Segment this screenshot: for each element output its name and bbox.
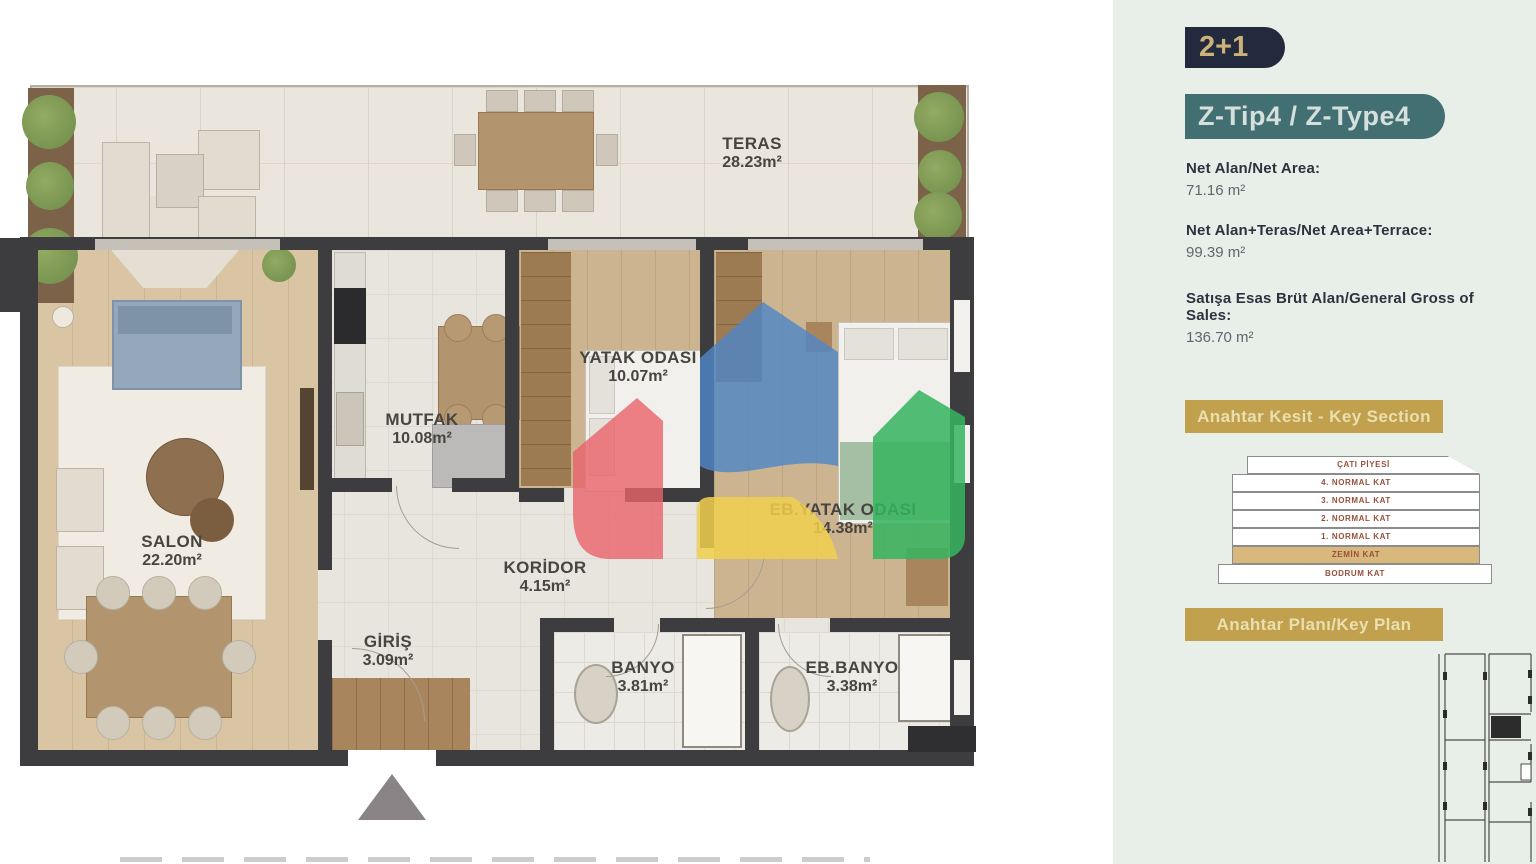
- cooktop: [334, 288, 366, 344]
- dining-chair: [96, 576, 130, 610]
- wall: [660, 618, 775, 632]
- plant-icon: [22, 95, 76, 149]
- wall: [745, 632, 759, 750]
- key-plan-banner: Anahtar Planı/Key Plan: [1185, 608, 1443, 641]
- floor-row: 2. NORMAL KAT: [1232, 510, 1480, 528]
- pillow: [589, 418, 615, 476]
- room-label-yatak-odasi: YATAK ODASI 10.07m²: [579, 348, 696, 386]
- floor-row: ÇATI PİYESİ: [1247, 456, 1480, 474]
- sofa-cushions: [118, 306, 232, 334]
- floor-row: BODRUM KAT: [1218, 564, 1492, 584]
- dining-chair: [188, 576, 222, 610]
- room-label-giris: GİRİŞ 3.09m²: [363, 632, 414, 670]
- kitchen-sink: [336, 392, 364, 446]
- dining-chair: [188, 706, 222, 740]
- dining-chair: [96, 706, 130, 740]
- wall: [318, 250, 332, 570]
- terrace-chair: [486, 190, 518, 212]
- sliding-door: [748, 239, 923, 250]
- terrace-chair: [562, 190, 594, 212]
- dining-table: [86, 596, 232, 718]
- unit-code-badge: Z-Tip4 / Z-Type4: [1185, 94, 1445, 139]
- terrace-table: [156, 154, 204, 208]
- wall: [625, 488, 714, 502]
- plant-icon: [914, 192, 962, 240]
- shaft-block: [908, 726, 976, 752]
- room-label-mutfak: MUTFAK 10.08m²: [385, 410, 458, 448]
- floor-lamp-icon: [52, 306, 74, 328]
- wall: [554, 618, 614, 632]
- shower: [898, 634, 956, 722]
- floor-row: 1. NORMAL KAT: [1232, 528, 1480, 546]
- floor-row-highlighted: ZEMİN KAT: [1232, 546, 1480, 564]
- plant-icon: [262, 248, 296, 282]
- terrace-chair: [596, 134, 618, 166]
- plant-icon: [918, 150, 962, 194]
- plant-icon: [914, 92, 964, 142]
- shower: [682, 634, 742, 748]
- terrace-sofa: [102, 142, 150, 240]
- wardrobe: [521, 252, 571, 486]
- dining-chair: [142, 576, 176, 610]
- unit-code-label: Z-Tip4 / Z-Type4: [1198, 101, 1411, 131]
- floor-plan: TERAS 28.23m² SALON 22.20m² MUTFAK 10.08…: [0, 0, 1100, 864]
- wall: [700, 502, 714, 548]
- bench: [906, 548, 948, 606]
- entrance-arrow-icon: [358, 774, 426, 820]
- dining-chair: [222, 640, 256, 674]
- terrace-chair: [454, 134, 476, 166]
- terrace-sofa: [198, 130, 260, 190]
- window: [954, 660, 970, 715]
- floor-row: 3. NORMAL KAT: [1232, 492, 1480, 510]
- key-section-banner: Anahtar Kesit - Key Section: [1185, 400, 1443, 433]
- room-label-teras: TERAS 28.23m²: [722, 134, 782, 172]
- room-label-eb-yatak-odasi: EB.YATAK ODASI 14.38m²: [770, 500, 917, 538]
- wall: [20, 750, 974, 766]
- wall: [318, 640, 332, 750]
- sliding-door: [548, 239, 696, 250]
- unit-type-label: 2+1: [1199, 31, 1248, 63]
- terrace-chair: [562, 90, 594, 112]
- stat-gross-area: Satışa Esas Brüt Alan/General Gross of S…: [1186, 290, 1516, 346]
- stat-net-area: Net Alan/Net Area: 71.16 m²: [1186, 160, 1516, 199]
- sliding-door: [95, 239, 280, 250]
- plant-icon: [26, 162, 74, 210]
- terrace-chair: [524, 190, 556, 212]
- unit-type-badge: 2+1: [1185, 27, 1285, 68]
- room-label-banyo: BANYO 3.81m²: [611, 658, 674, 696]
- tv-unit: [300, 388, 314, 490]
- floor-row: 4. NORMAL KAT: [1232, 474, 1480, 492]
- wall: [700, 250, 714, 502]
- room-label-salon: SALON 22.20m²: [141, 532, 203, 570]
- pillow: [898, 328, 948, 360]
- window: [954, 300, 970, 372]
- terrace-dining-table: [478, 112, 594, 190]
- dining-chair: [142, 706, 176, 740]
- info-sidebar: 2+1 Z-Tip4 / Z-Type4 Net Alan/Net Area: …: [1113, 0, 1536, 864]
- wall: [20, 238, 38, 765]
- washbasin: [770, 666, 810, 732]
- kitchen-chair: [444, 314, 472, 342]
- bottom-dashed-line: [120, 857, 870, 862]
- wall: [830, 618, 952, 632]
- terrace-chair: [524, 90, 556, 112]
- room-label-eb-banyo: EB.BANYO 3.38m²: [806, 658, 899, 696]
- terrace-chair: [486, 90, 518, 112]
- room-label-koridor: KORİDOR 4.15m²: [503, 558, 586, 596]
- stat-net-area-terrace: Net Alan+Teras/Net Area+Terrace: 99.39 m…: [1186, 222, 1516, 261]
- wardrobe: [716, 252, 762, 382]
- dining-chair: [64, 640, 98, 674]
- pillow: [844, 328, 894, 360]
- nightstand: [806, 322, 832, 352]
- key-plan-drawing: [1433, 652, 1536, 864]
- wall: [519, 488, 564, 502]
- wall: [452, 478, 519, 492]
- entrance-opening: [348, 750, 436, 766]
- wall: [540, 618, 554, 750]
- armchair: [56, 468, 104, 532]
- wall: [505, 250, 519, 490]
- wall: [332, 478, 392, 492]
- window: [954, 425, 970, 483]
